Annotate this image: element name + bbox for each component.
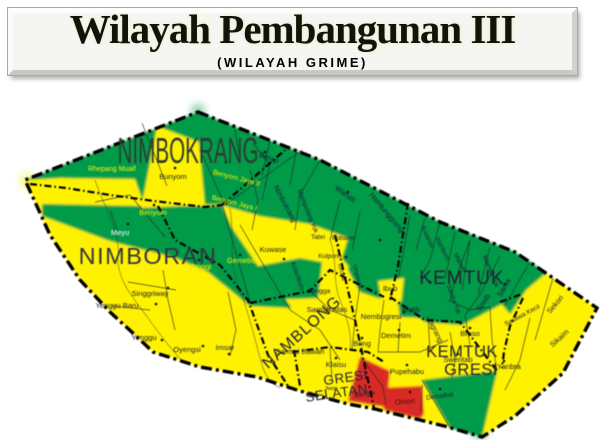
svg-text:Braso: Braso	[460, 329, 480, 338]
svg-text:Bunyom: Bunyom	[159, 172, 187, 181]
svg-text:Singgi: Singgi	[191, 262, 212, 271]
svg-text:Tabri: Tabri	[311, 234, 325, 241]
svg-text:Sarmai Bawah: Sarmai Bawah	[276, 347, 325, 356]
svg-text:Imsar: Imsar	[216, 343, 235, 352]
svg-text:Kuwase: Kuwase	[260, 245, 287, 254]
svg-text:Rhepang Muaif: Rhepang Muaif	[88, 166, 136, 173]
svg-text:Swentab: Swentab	[443, 355, 472, 364]
svg-text:Sarmai Atas: Sarmai Atas	[307, 305, 348, 314]
svg-text:Yenggu Baru: Yenggu Baru	[95, 301, 138, 310]
svg-text:Benyom: Benyom	[139, 208, 167, 217]
svg-text:NIMBOKRANG: NIMBOKRANG	[118, 130, 259, 171]
svg-text:Oyengsi: Oyengsi	[173, 345, 201, 354]
svg-text:Pupehabu: Pupehabu	[390, 367, 424, 376]
svg-text:Kulpons: Kulpons	[318, 253, 342, 260]
svg-text:Bring: Bring	[353, 339, 371, 348]
svg-text:Yanbra: Yanbra	[497, 362, 521, 371]
svg-text:Yenggu: Yenggu	[131, 333, 156, 342]
svg-text:Klaisu: Klaisu	[326, 360, 346, 369]
svg-text:Ibub: Ibub	[383, 284, 398, 293]
svg-text:Omon: Omon	[394, 396, 415, 407]
svg-text:Hatib: Hatib	[402, 305, 420, 314]
svg-text:Gemebs: Gemebs	[227, 256, 256, 265]
svg-text:Pobaim: Pobaim	[332, 235, 354, 242]
svg-text:Demetim: Demetim	[381, 331, 411, 340]
svg-text:Singgriway: Singgriway	[132, 289, 169, 298]
svg-text:Jwon: Jwon	[325, 386, 338, 392]
svg-text:Sangga: Sangga	[308, 288, 331, 295]
svg-text:Meyu: Meyu	[111, 228, 129, 237]
svg-text:Nembugresi: Nembugresi	[361, 312, 402, 321]
